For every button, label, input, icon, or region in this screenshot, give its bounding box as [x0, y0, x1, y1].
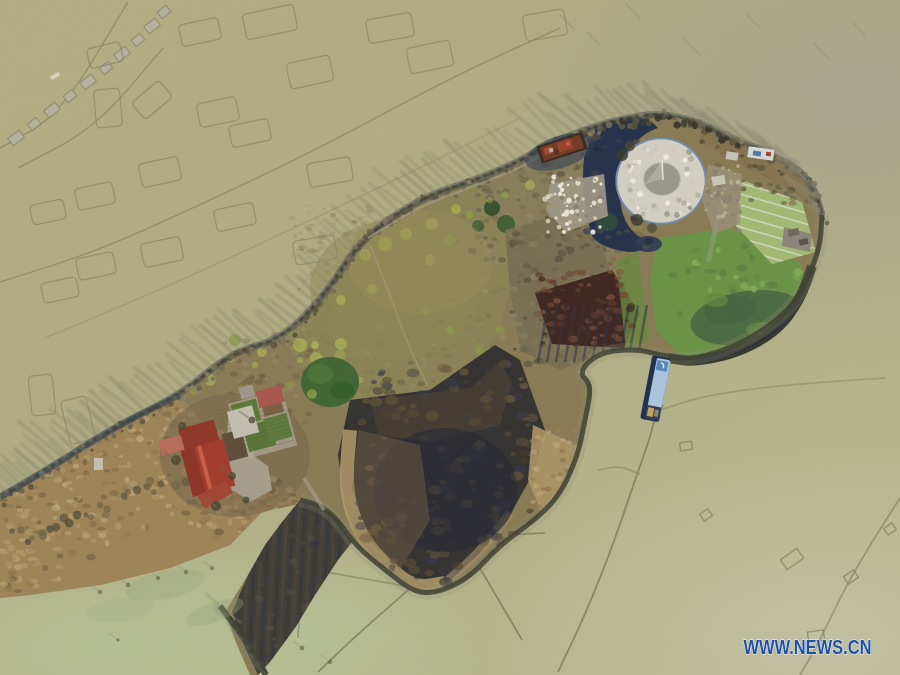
svg-text:WWW.NEWS.CN: WWW.NEWS.CN [744, 637, 872, 659]
